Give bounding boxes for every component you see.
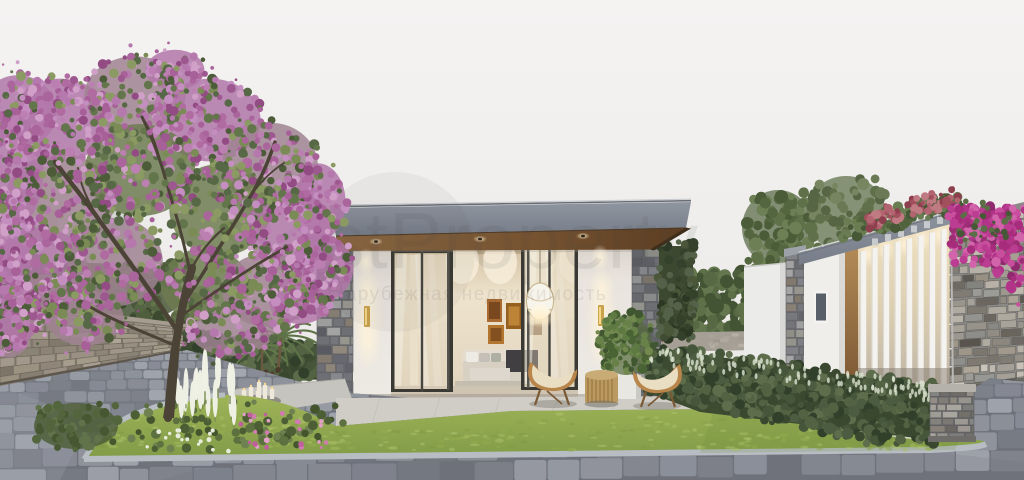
svg-text:Зарубежная недвижимость: Зарубежная недвижимость xyxy=(333,284,607,305)
